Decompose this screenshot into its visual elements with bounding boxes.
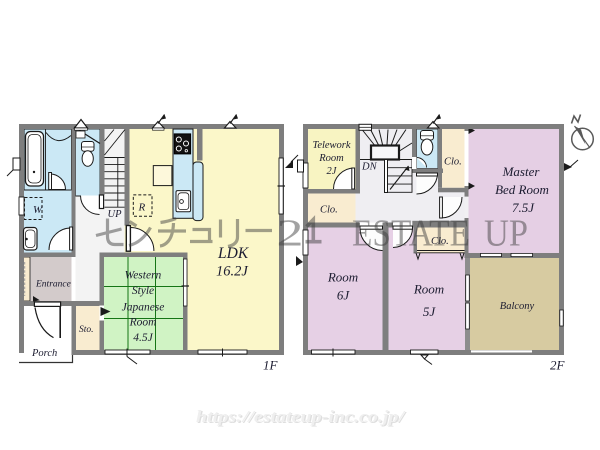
- svg-text:2F: 2F: [550, 358, 566, 373]
- svg-text:Style: Style: [132, 285, 154, 297]
- svg-text:Balcony: Balcony: [500, 301, 535, 312]
- svg-text:Clo.: Clo.: [444, 157, 462, 168]
- svg-text:Western: Western: [125, 270, 162, 282]
- svg-text:16.2J: 16.2J: [216, 264, 248, 280]
- svg-text:4.5J: 4.5J: [133, 332, 153, 344]
- svg-text:5J: 5J: [423, 304, 437, 319]
- svg-text:6J: 6J: [337, 288, 351, 303]
- svg-text:LDK: LDK: [217, 245, 249, 262]
- svg-text:Japanese: Japanese: [122, 302, 165, 314]
- svg-text:UP: UP: [484, 213, 528, 255]
- svg-text:1F: 1F: [263, 358, 279, 373]
- svg-text:https://estateup-inc.co.jp/: https://estateup-inc.co.jp/: [196, 407, 406, 426]
- svg-text:Clo.: Clo.: [320, 205, 338, 216]
- svg-text:UP: UP: [108, 209, 123, 220]
- svg-text:Bed Room: Bed Room: [495, 182, 549, 197]
- svg-text:2: 2: [277, 213, 304, 255]
- svg-text:Room: Room: [129, 317, 157, 329]
- svg-text:Porch: Porch: [31, 348, 57, 359]
- svg-text:R: R: [138, 202, 146, 214]
- svg-text:Room: Room: [327, 270, 358, 285]
- svg-text:Sto.: Sto.: [79, 325, 94, 335]
- svg-text:W: W: [33, 204, 43, 216]
- svg-text:Room: Room: [318, 153, 344, 164]
- svg-text:2J: 2J: [327, 166, 338, 177]
- svg-text:Entrance: Entrance: [35, 280, 71, 290]
- svg-text:ESTATE: ESTATE: [352, 213, 470, 255]
- svg-text:Master: Master: [502, 164, 541, 179]
- svg-text:Room: Room: [413, 282, 444, 297]
- svg-text:Telework: Telework: [312, 140, 350, 151]
- svg-text:DN: DN: [361, 162, 378, 173]
